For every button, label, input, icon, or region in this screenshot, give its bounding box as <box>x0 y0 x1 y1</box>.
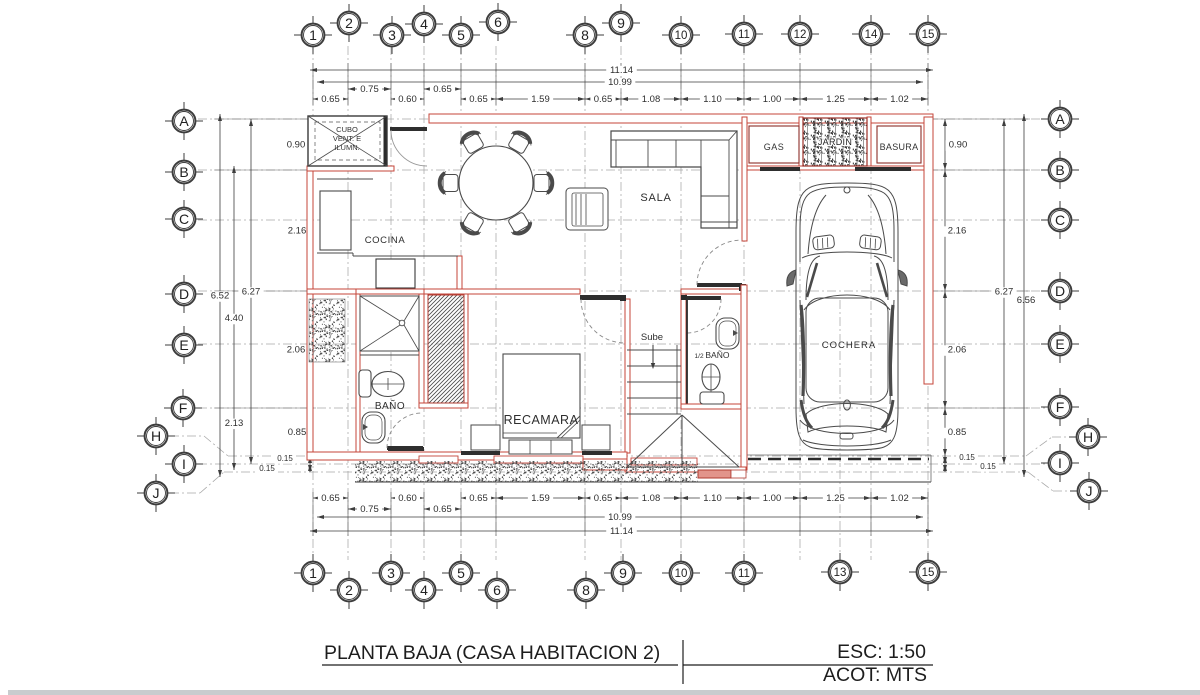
svg-text:E: E <box>1055 336 1064 352</box>
svg-text:F: F <box>1056 399 1065 415</box>
svg-text:8: 8 <box>581 27 589 43</box>
svg-text:F: F <box>179 400 188 416</box>
svg-text:11.14: 11.14 <box>610 526 633 537</box>
svg-text:3: 3 <box>388 27 396 43</box>
svg-text:6.56: 6.56 <box>1017 295 1036 306</box>
svg-text:ILUMN.: ILUMN. <box>334 143 359 152</box>
svg-text:13: 13 <box>834 567 847 579</box>
svg-text:0.65: 0.65 <box>321 94 340 105</box>
svg-text:1.10: 1.10 <box>703 94 722 105</box>
svg-text:2.06: 2.06 <box>287 345 306 356</box>
svg-text:2.06: 2.06 <box>948 345 967 356</box>
svg-text:VENT. E: VENT. E <box>333 134 361 143</box>
svg-text:B: B <box>1055 162 1064 178</box>
svg-text:8: 8 <box>582 582 590 598</box>
svg-text:ESC: 1:50: ESC: 1:50 <box>837 641 926 663</box>
svg-text:0.15: 0.15 <box>259 464 275 473</box>
svg-text:10: 10 <box>675 30 688 42</box>
svg-text:2.16: 2.16 <box>948 226 967 237</box>
svg-text:1.59: 1.59 <box>531 493 550 504</box>
svg-text:1.02: 1.02 <box>890 94 909 105</box>
svg-text:5: 5 <box>457 27 465 43</box>
svg-text:J: J <box>153 485 160 501</box>
svg-text:0.65: 0.65 <box>469 94 488 105</box>
svg-text:J: J <box>1086 483 1093 499</box>
svg-text:I: I <box>1058 455 1062 471</box>
svg-text:0.65: 0.65 <box>469 493 488 504</box>
svg-text:H: H <box>151 428 161 444</box>
svg-text:2: 2 <box>345 582 353 598</box>
svg-text:12: 12 <box>794 29 807 41</box>
svg-text:6: 6 <box>494 14 502 30</box>
svg-text:I: I <box>182 456 186 472</box>
svg-text:2: 2 <box>345 15 353 31</box>
svg-text:0.85: 0.85 <box>948 427 967 438</box>
svg-text:1.25: 1.25 <box>826 493 845 504</box>
svg-text:1.10: 1.10 <box>703 493 722 504</box>
svg-text:0.65: 0.65 <box>433 504 452 515</box>
svg-text:0.75: 0.75 <box>360 504 379 515</box>
svg-text:1.00: 1.00 <box>763 493 782 504</box>
svg-text:A: A <box>179 113 189 129</box>
svg-text:0.65: 0.65 <box>594 493 613 504</box>
svg-text:0.65: 0.65 <box>594 94 613 105</box>
svg-text:2.13: 2.13 <box>225 418 244 429</box>
svg-text:10.99: 10.99 <box>608 77 632 88</box>
svg-text:1.08: 1.08 <box>642 493 661 504</box>
svg-text:GAS: GAS <box>764 142 785 152</box>
svg-text:4: 4 <box>420 582 428 598</box>
svg-text:B: B <box>179 164 188 180</box>
svg-text:9: 9 <box>619 565 627 581</box>
svg-text:COCHERA: COCHERA <box>822 340 877 351</box>
svg-text:BASURA: BASURA <box>880 142 919 152</box>
svg-text:15: 15 <box>922 29 935 41</box>
svg-text:6.27: 6.27 <box>242 287 261 298</box>
svg-text:10: 10 <box>675 568 688 580</box>
svg-text:0.15: 0.15 <box>980 462 996 471</box>
svg-text:1: 1 <box>309 27 317 43</box>
svg-text:C: C <box>1055 212 1065 228</box>
svg-text:6.27: 6.27 <box>995 287 1014 298</box>
svg-text:0.15: 0.15 <box>959 453 975 462</box>
svg-text:6: 6 <box>493 582 501 598</box>
svg-text:C: C <box>179 211 189 227</box>
svg-text:4: 4 <box>420 16 428 32</box>
svg-text:2.16: 2.16 <box>288 226 307 237</box>
svg-text:1: 1 <box>309 565 317 581</box>
svg-text:E: E <box>179 337 188 353</box>
svg-text:JARDIN: JARDIN <box>818 137 852 147</box>
svg-text:9: 9 <box>617 15 625 31</box>
svg-text:1.08: 1.08 <box>642 94 661 105</box>
svg-text:10.99: 10.99 <box>608 512 632 523</box>
svg-text:D: D <box>179 286 189 302</box>
svg-text:A: A <box>1055 111 1065 127</box>
svg-text:1.25: 1.25 <box>826 94 845 105</box>
svg-text:Sube: Sube <box>641 332 663 343</box>
svg-text:0.85: 0.85 <box>288 427 307 438</box>
svg-text:0.65: 0.65 <box>321 493 340 504</box>
svg-text:BAÑO: BAÑO <box>375 399 405 412</box>
svg-text:0.15: 0.15 <box>277 454 293 463</box>
svg-text:6.52: 6.52 <box>211 291 230 302</box>
svg-text:PLANTA BAJA (CASA HABITACION 2: PLANTA BAJA (CASA HABITACION 2) <box>324 642 660 664</box>
svg-text:0.60: 0.60 <box>398 94 417 105</box>
svg-text:11.14: 11.14 <box>610 65 633 76</box>
svg-text:5: 5 <box>457 565 465 581</box>
svg-text:SALA: SALA <box>640 192 671 204</box>
svg-text:COCINA: COCINA <box>365 235 406 246</box>
svg-text:ACOT: MTS: ACOT: MTS <box>823 664 927 686</box>
svg-text:0.90: 0.90 <box>287 140 306 151</box>
svg-text:1.00: 1.00 <box>763 94 782 105</box>
svg-text:15: 15 <box>922 567 935 579</box>
svg-text:0.60: 0.60 <box>398 493 417 504</box>
svg-text:0.65: 0.65 <box>433 84 452 95</box>
svg-text:RECAMARA: RECAMARA <box>504 413 579 427</box>
svg-text:1.59: 1.59 <box>531 94 550 105</box>
svg-text:0.75: 0.75 <box>360 84 379 95</box>
svg-text:CUBO: CUBO <box>336 125 358 134</box>
svg-text:H: H <box>1083 429 1093 445</box>
svg-text:11: 11 <box>738 568 750 580</box>
svg-text:4.40: 4.40 <box>225 313 244 324</box>
svg-text:D: D <box>1055 283 1065 299</box>
svg-text:11: 11 <box>738 29 750 41</box>
svg-text:1.02: 1.02 <box>890 493 909 504</box>
svg-text:3: 3 <box>387 565 395 581</box>
svg-text:14: 14 <box>865 29 878 41</box>
svg-text:0.90: 0.90 <box>949 140 968 151</box>
